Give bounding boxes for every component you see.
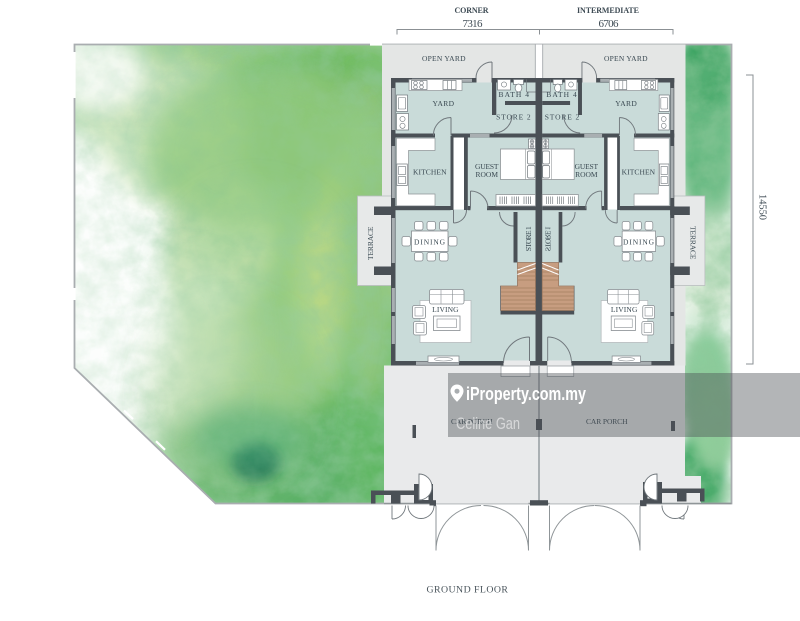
svg-text:BATH 4: BATH 4	[546, 90, 577, 99]
svg-text:CORNER: CORNER	[455, 6, 490, 15]
svg-text:YARD: YARD	[433, 99, 455, 108]
svg-text:KITCHEN: KITCHEN	[622, 168, 656, 177]
svg-text:14550: 14550	[757, 194, 768, 220]
svg-text:OPEN YARD: OPEN YARD	[604, 54, 648, 63]
svg-text:TERRACE: TERRACE	[688, 226, 697, 260]
svg-text:INTERMEDIATE: INTERMEDIATE	[577, 6, 640, 15]
svg-text:STORE 1: STORE 1	[543, 226, 552, 252]
svg-text:STORE 1: STORE 1	[524, 226, 533, 252]
svg-text:KITCHEN: KITCHEN	[413, 168, 447, 177]
svg-text:TERRACE: TERRACE	[366, 226, 375, 260]
svg-text:STORE 2: STORE 2	[496, 113, 531, 122]
svg-text:ROOM: ROOM	[575, 170, 598, 179]
svg-text:DINING: DINING	[414, 237, 446, 246]
svg-text:STORE 2: STORE 2	[545, 113, 580, 122]
svg-text:7316: 7316	[463, 18, 484, 30]
svg-text:ROOM: ROOM	[476, 170, 499, 179]
svg-text:YARD: YARD	[615, 99, 637, 108]
svg-text:DINING: DINING	[623, 237, 655, 246]
svg-text:LIVING: LIVING	[611, 305, 638, 314]
svg-text:Celine Gan: Celine Gan	[456, 415, 520, 433]
svg-text:GROUND FLOOR: GROUND FLOOR	[427, 585, 511, 596]
svg-text:BATH 4: BATH 4	[499, 90, 530, 99]
svg-text:OPEN YARD: OPEN YARD	[422, 54, 466, 63]
svg-text:LIVING: LIVING	[432, 305, 459, 314]
svg-text:6706: 6706	[599, 18, 620, 30]
svg-text:iProperty.com.my: iProperty.com.my	[466, 384, 586, 404]
